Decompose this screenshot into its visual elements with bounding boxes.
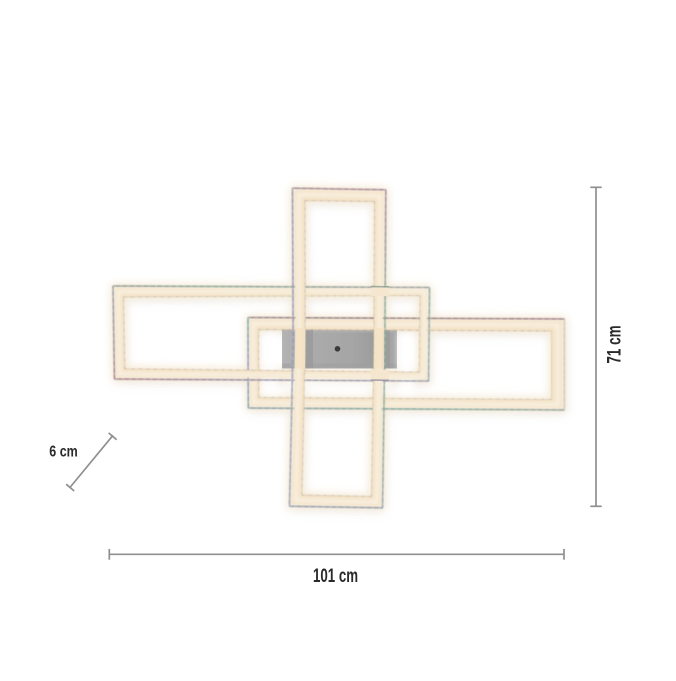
svg-text:101 cm: 101 cm bbox=[313, 566, 358, 587]
svg-text:71 cm: 71 cm bbox=[604, 325, 625, 363]
svg-text:6 cm: 6 cm bbox=[49, 443, 77, 461]
